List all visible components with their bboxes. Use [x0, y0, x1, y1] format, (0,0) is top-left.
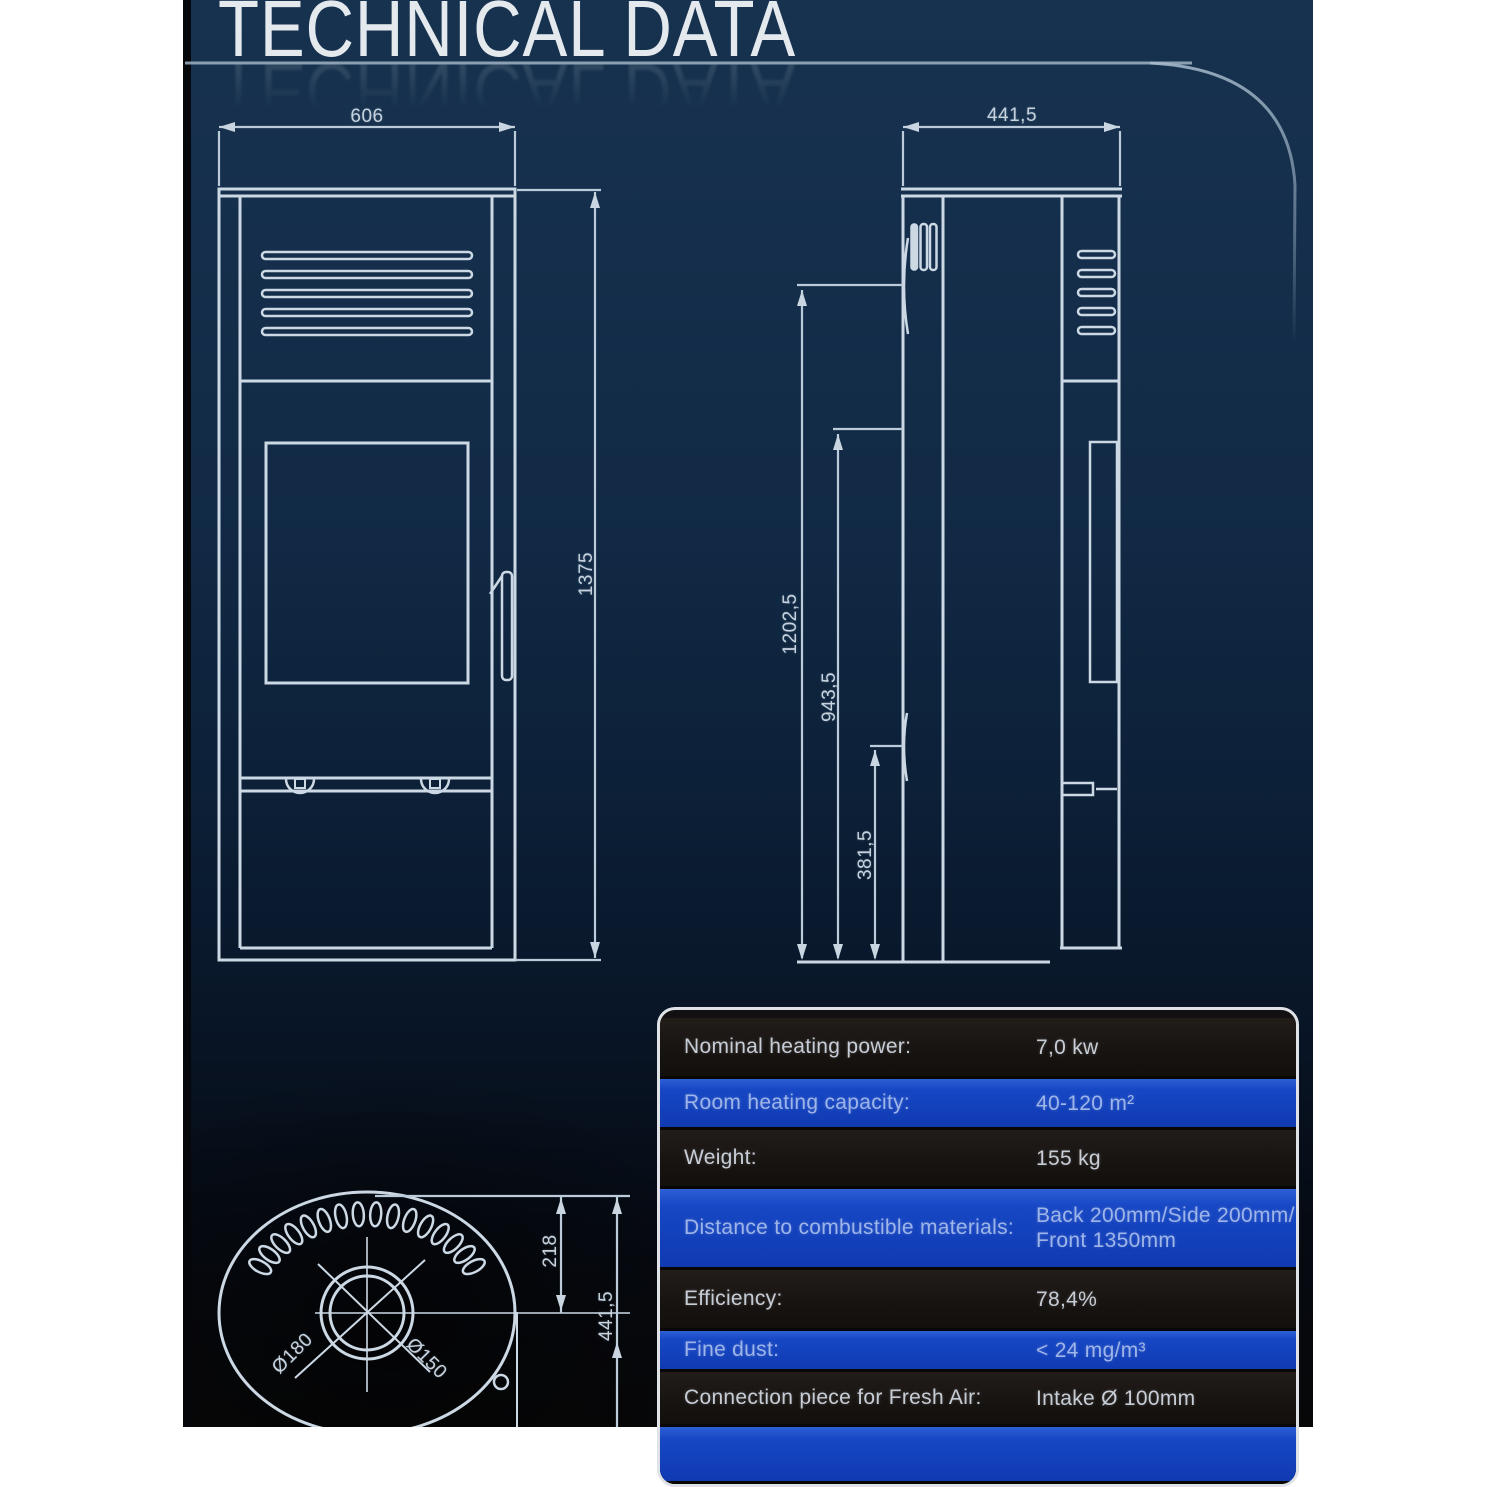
top-view-drawing [219, 1192, 630, 1427]
table-row: Fine dust: < 24 mg/m³ [660, 1328, 1296, 1372]
table-row: Efficiency: 78,4% [660, 1270, 1296, 1328]
table-row-partial [660, 1424, 1296, 1484]
technical-data-sheet: { "header": { "title": "TECHNICAL DATA" … [0, 0, 1500, 1427]
front-width-dim-label: 606 [307, 106, 427, 128]
side-mid-height-dim-label: 943,5 [819, 637, 841, 757]
side-total-height-dim-label: 1202,5 [780, 564, 802, 684]
spec-label: Fine dust: [660, 1338, 779, 1362]
spec-value: 7,0 kw [1036, 1035, 1099, 1060]
table-row: Room heating capacity: 40-120 m² [660, 1076, 1296, 1130]
spec-label: Efficiency: [660, 1287, 783, 1311]
table-row: Connection piece for Fresh Air: Intake Ø… [660, 1372, 1296, 1424]
side-view-dimensions [797, 127, 1120, 958]
top-depth-dim-label: 441,5 [596, 1256, 618, 1376]
spec-label: Connection piece for Fresh Air: [660, 1386, 982, 1410]
front-height-dim-label: 1375 [576, 514, 598, 634]
spec-value-line1: Back 200mm/Side 200mm/ [1036, 1204, 1295, 1227]
side-view-drawing [797, 189, 1122, 962]
spec-value: 78,4% [1036, 1287, 1097, 1312]
side-depth-dim-label: 441,5 [952, 105, 1072, 127]
table-row: Distance to combustible materials: Back … [660, 1186, 1296, 1270]
spec-value: Back 200mm/Side 200mm/ Front 1350mm [1036, 1203, 1295, 1253]
spec-value-line2: Front 1350mm [1036, 1229, 1176, 1252]
front-view-dim-arrows [219, 122, 600, 958]
spec-value: Intake Ø 100mm [1036, 1386, 1195, 1411]
side-view-dim-arrows [797, 122, 1120, 960]
table-row: Weight: 155 kg [660, 1130, 1296, 1186]
spec-value: 155 kg [1036, 1146, 1101, 1171]
title-underline-swoosh [185, 63, 1295, 340]
spec-label: Weight: [660, 1146, 757, 1170]
spec-value: 40-120 m² [1036, 1091, 1134, 1116]
spec-label: Room heating capacity: [660, 1091, 910, 1115]
spec-value: < 24 mg/m³ [1036, 1338, 1146, 1363]
spec-label: Nominal heating power: [660, 1035, 911, 1059]
spec-label: Distance to combustible materials: [660, 1216, 1014, 1240]
spec-table: Nominal heating power: 7,0 kw Room heati… [657, 1007, 1299, 1487]
side-low-height-dim-label: 381,5 [855, 795, 877, 915]
front-view-drawing [219, 189, 515, 960]
top-flue-offset-dim-label: 218 [540, 1191, 562, 1311]
table-row: Nominal heating power: 7,0 kw [660, 1018, 1296, 1076]
